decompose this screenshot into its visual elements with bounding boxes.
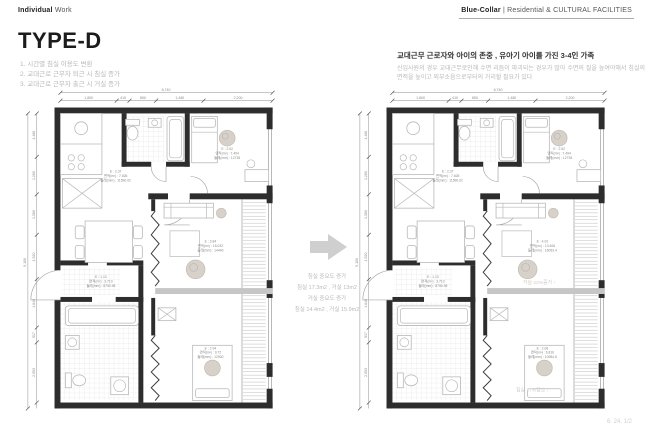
note-item-1: 1. 시간별 침실 이용도 변환 bbox=[20, 60, 120, 70]
chair bbox=[75, 226, 84, 239]
bedroom-top-label-1: E : 2.52 bbox=[221, 147, 233, 151]
header-left-bold: Individual bbox=[18, 7, 53, 14]
kitchen-label-2: 면적(m²) : 7.826 bbox=[104, 173, 128, 178]
bedroom-top-label-3: 둘레(mm) : 12735 bbox=[546, 155, 572, 160]
description-heading: 교대근무 근로자와 아이의 존중 , 유아기 아이를 가진 3-4인 가족 bbox=[397, 50, 645, 61]
header-right: Blue-Collar | Residential & CULTURAL FAC… bbox=[459, 7, 634, 19]
dim-top-seg-4: 1,480 bbox=[175, 96, 184, 100]
dim-left-seg-6: 517 bbox=[32, 332, 36, 338]
kitchen-label-1: E : 2.37 bbox=[442, 170, 454, 174]
transition-arrow bbox=[308, 232, 350, 267]
bedroom-top-label-2: 면적(m²) : 7.494 bbox=[547, 150, 571, 155]
dim-top-seg-5: 2,200 bbox=[234, 96, 243, 100]
right-arrow-icon bbox=[308, 232, 350, 262]
chair bbox=[133, 246, 142, 259]
bedroom-bottom-label-3: 둘레(mm) : 10984.8 bbox=[528, 354, 557, 359]
header-left: Individual Work bbox=[18, 7, 72, 14]
entry-label-1: E : 1.13 bbox=[95, 275, 107, 279]
dim-top-seg-3: 850 bbox=[140, 96, 146, 100]
blanket bbox=[205, 360, 221, 376]
floor-plan-geometry: 6,740 1,800 410 850 1,480 2,200 9,100 1,… bbox=[23, 88, 275, 410]
header-right-rest: | Residential & CULTURAL FACILITIES bbox=[501, 7, 632, 14]
entry-label-3: 둘레(mm) : 8790.98 bbox=[86, 283, 115, 288]
entry-label-2: 면적(m²) : 3.710 bbox=[421, 279, 445, 284]
kitchen-label-1: E : 2.37 bbox=[110, 170, 122, 174]
dim-left-seg-1: 1,480 bbox=[32, 131, 36, 140]
dim-top-total: 6,740 bbox=[162, 88, 171, 92]
bedroom-top-label-1: E : 2.52 bbox=[553, 147, 565, 151]
toilet-2 bbox=[73, 375, 86, 386]
entry-label-1: E : 1.13 bbox=[427, 275, 439, 279]
folding-partition-living bbox=[151, 211, 159, 286]
bedroom-top-label-3: 둘레(mm) : 12735 bbox=[214, 155, 240, 160]
living-label-1: E : 3.84 bbox=[205, 240, 217, 244]
bedroom-bottom-label-1: E : 2.08 bbox=[537, 346, 549, 350]
entry-label-2: 면적(m²) : 3.710 bbox=[89, 279, 113, 284]
transition-line-4: 침실 14.4m2 , 거실 15.9m2 bbox=[262, 305, 392, 316]
living-label-2: 면적(m²) : 15.032 bbox=[198, 243, 223, 248]
toilet-tank bbox=[126, 119, 140, 125]
transition-notes: 침실 중요도 증가 침실 17.3m2 , 거실 13m2 거실 중요도 증가 … bbox=[262, 272, 392, 316]
living-label-2: 면적(m²) : 13.406 bbox=[530, 243, 555, 248]
living-change-overlay: 거실 22%증가 ↑ bbox=[523, 279, 556, 286]
rug bbox=[170, 231, 200, 257]
toilet bbox=[127, 126, 138, 140]
kitchen-label-3: 둘레(mm) : 11590.02 bbox=[432, 178, 463, 183]
bath-sink-2 bbox=[65, 335, 79, 349]
bedroom-bottom-label-3: 둘레(mm) : 12900 bbox=[197, 354, 223, 359]
sofa bbox=[164, 203, 213, 218]
dim-top-seg-1: 1,800 bbox=[84, 96, 93, 100]
living-label-3: 둘레(mm) : 14440 bbox=[197, 248, 223, 253]
kitchen-sink bbox=[75, 122, 88, 135]
dining-table bbox=[85, 221, 132, 262]
chair bbox=[75, 246, 84, 259]
living-label-3: 둘레(mm) : 16053.4 bbox=[528, 248, 557, 253]
pillow bbox=[194, 118, 216, 127]
dim-left-seg-7: 2,053 bbox=[32, 368, 36, 377]
page-footer: 6. 24. 1/2 bbox=[607, 419, 632, 425]
desk bbox=[245, 170, 269, 182]
description-body: 신입사원의 경우 교대근무로인해 수면 리듬이 파괴되는 경우가 많아 수면의 … bbox=[397, 65, 645, 83]
living-label-1: E : 4.02 bbox=[537, 240, 549, 244]
bathtub-2 bbox=[65, 306, 138, 326]
sliding-partition bbox=[155, 288, 272, 294]
transition-line-3: 거실 중요도 증가 bbox=[262, 294, 392, 305]
note-item-2: 2. 교대근로 근무자 퇴근 시 침실 증가 bbox=[20, 70, 120, 80]
header-right-bold: Blue-Collar bbox=[461, 7, 501, 14]
pillow bbox=[196, 389, 230, 398]
page-title: TYPE-D bbox=[18, 28, 102, 54]
dim-left-seg-3: 1,380 bbox=[32, 210, 36, 219]
entry-label-3: 둘레(mm) : 8790.98 bbox=[418, 283, 447, 288]
bedroom-bottom-label-1: E : 2.94 bbox=[205, 346, 217, 350]
dim-left-seg-4: 1,520 bbox=[32, 253, 36, 262]
cushion bbox=[216, 208, 226, 218]
transition-line-2: 침실 17.3m2 , 거실 13m2 bbox=[262, 283, 392, 294]
description-block: 교대근무 근로자와 아이의 존중 , 유아기 아이를 가진 3-4인 가족 신입… bbox=[397, 50, 645, 83]
bedroom-change-overlay: 침실 17%감소 ↓ bbox=[516, 387, 549, 394]
floor-plan-before: 6,740 1,800 410 850 1,480 2,200 9,100 1,… bbox=[20, 86, 316, 428]
bedroom-top-label-2: 면적(m²) : 7.494 bbox=[215, 150, 239, 155]
folding-partition-bedroom bbox=[151, 335, 159, 400]
dim-top-seg-2: 410 bbox=[120, 96, 126, 100]
bedroom-bottom-label-2: 면적(m²) : 9.72 bbox=[200, 350, 222, 355]
dim-left-total: 9,100 bbox=[23, 258, 27, 267]
floor-plan-after: E : 2.37 면적(m²) : 7.826 둘레(mm) : 11590.0… bbox=[352, 86, 648, 428]
dim-left-seg-2: 1,280 bbox=[32, 171, 36, 180]
toilet-tank-2 bbox=[65, 373, 71, 388]
kitchen-label-3: 둘레(mm) : 11590.02 bbox=[100, 178, 131, 183]
bedroom-bottom-label-2: 면적(m²) : 6.816 bbox=[531, 350, 555, 355]
presentation-slide: { "header": { "left_bold": "Individual",… bbox=[0, 0, 650, 433]
transition-line-1: 침실 중요도 증가 bbox=[262, 272, 392, 283]
kitchen-label-2: 면적(m²) : 7.826 bbox=[436, 173, 460, 178]
header-left-rest: Work bbox=[53, 7, 72, 14]
chair bbox=[133, 226, 142, 239]
lounge-chair bbox=[186, 260, 205, 279]
